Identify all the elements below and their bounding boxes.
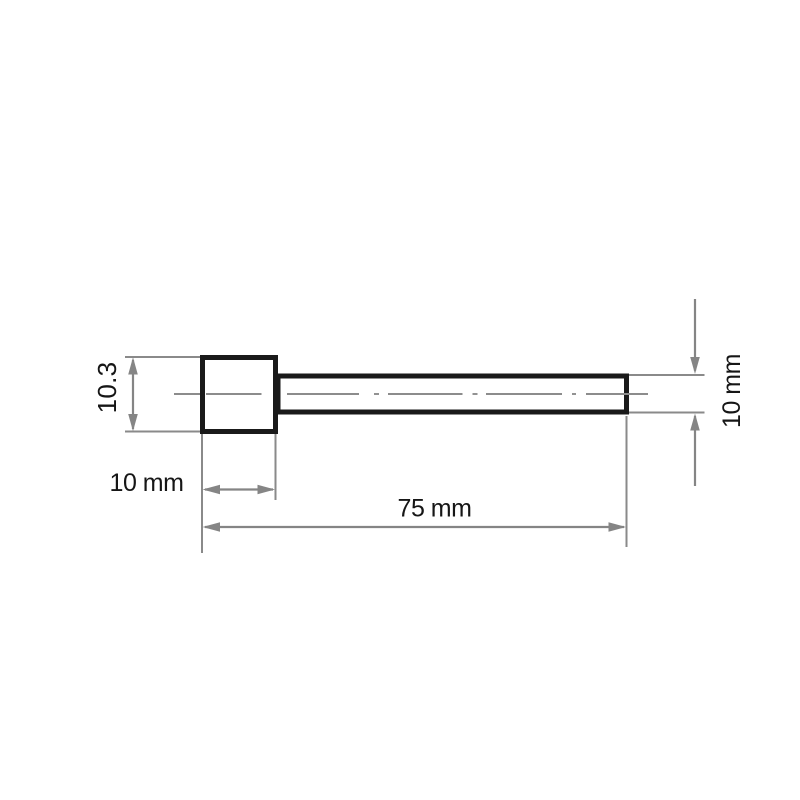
svg-text:10 mm: 10 mm <box>110 469 184 497</box>
svg-text:10.3: 10.3 <box>92 362 122 414</box>
svg-text:75 mm: 75 mm <box>398 495 472 523</box>
svg-text:10 mm: 10 mm <box>718 354 746 428</box>
